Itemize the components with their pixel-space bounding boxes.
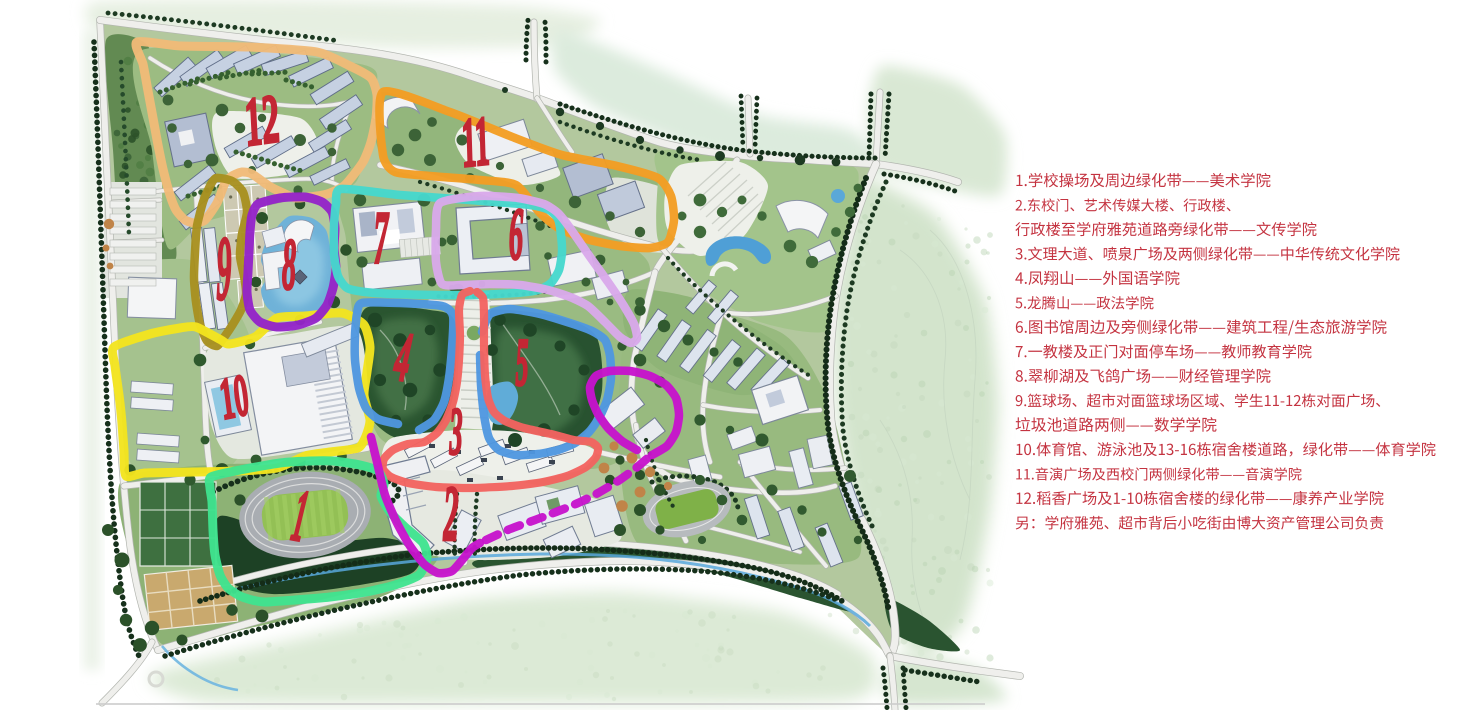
svg-text:6: 6 [509,194,524,276]
svg-text:9: 9 [217,217,232,319]
svg-text:7: 7 [374,197,390,280]
svg-text:8: 8 [282,224,296,305]
svg-text:2: 2 [443,469,459,557]
svg-text:5: 5 [515,326,528,401]
svg-text:3: 3 [449,395,463,470]
